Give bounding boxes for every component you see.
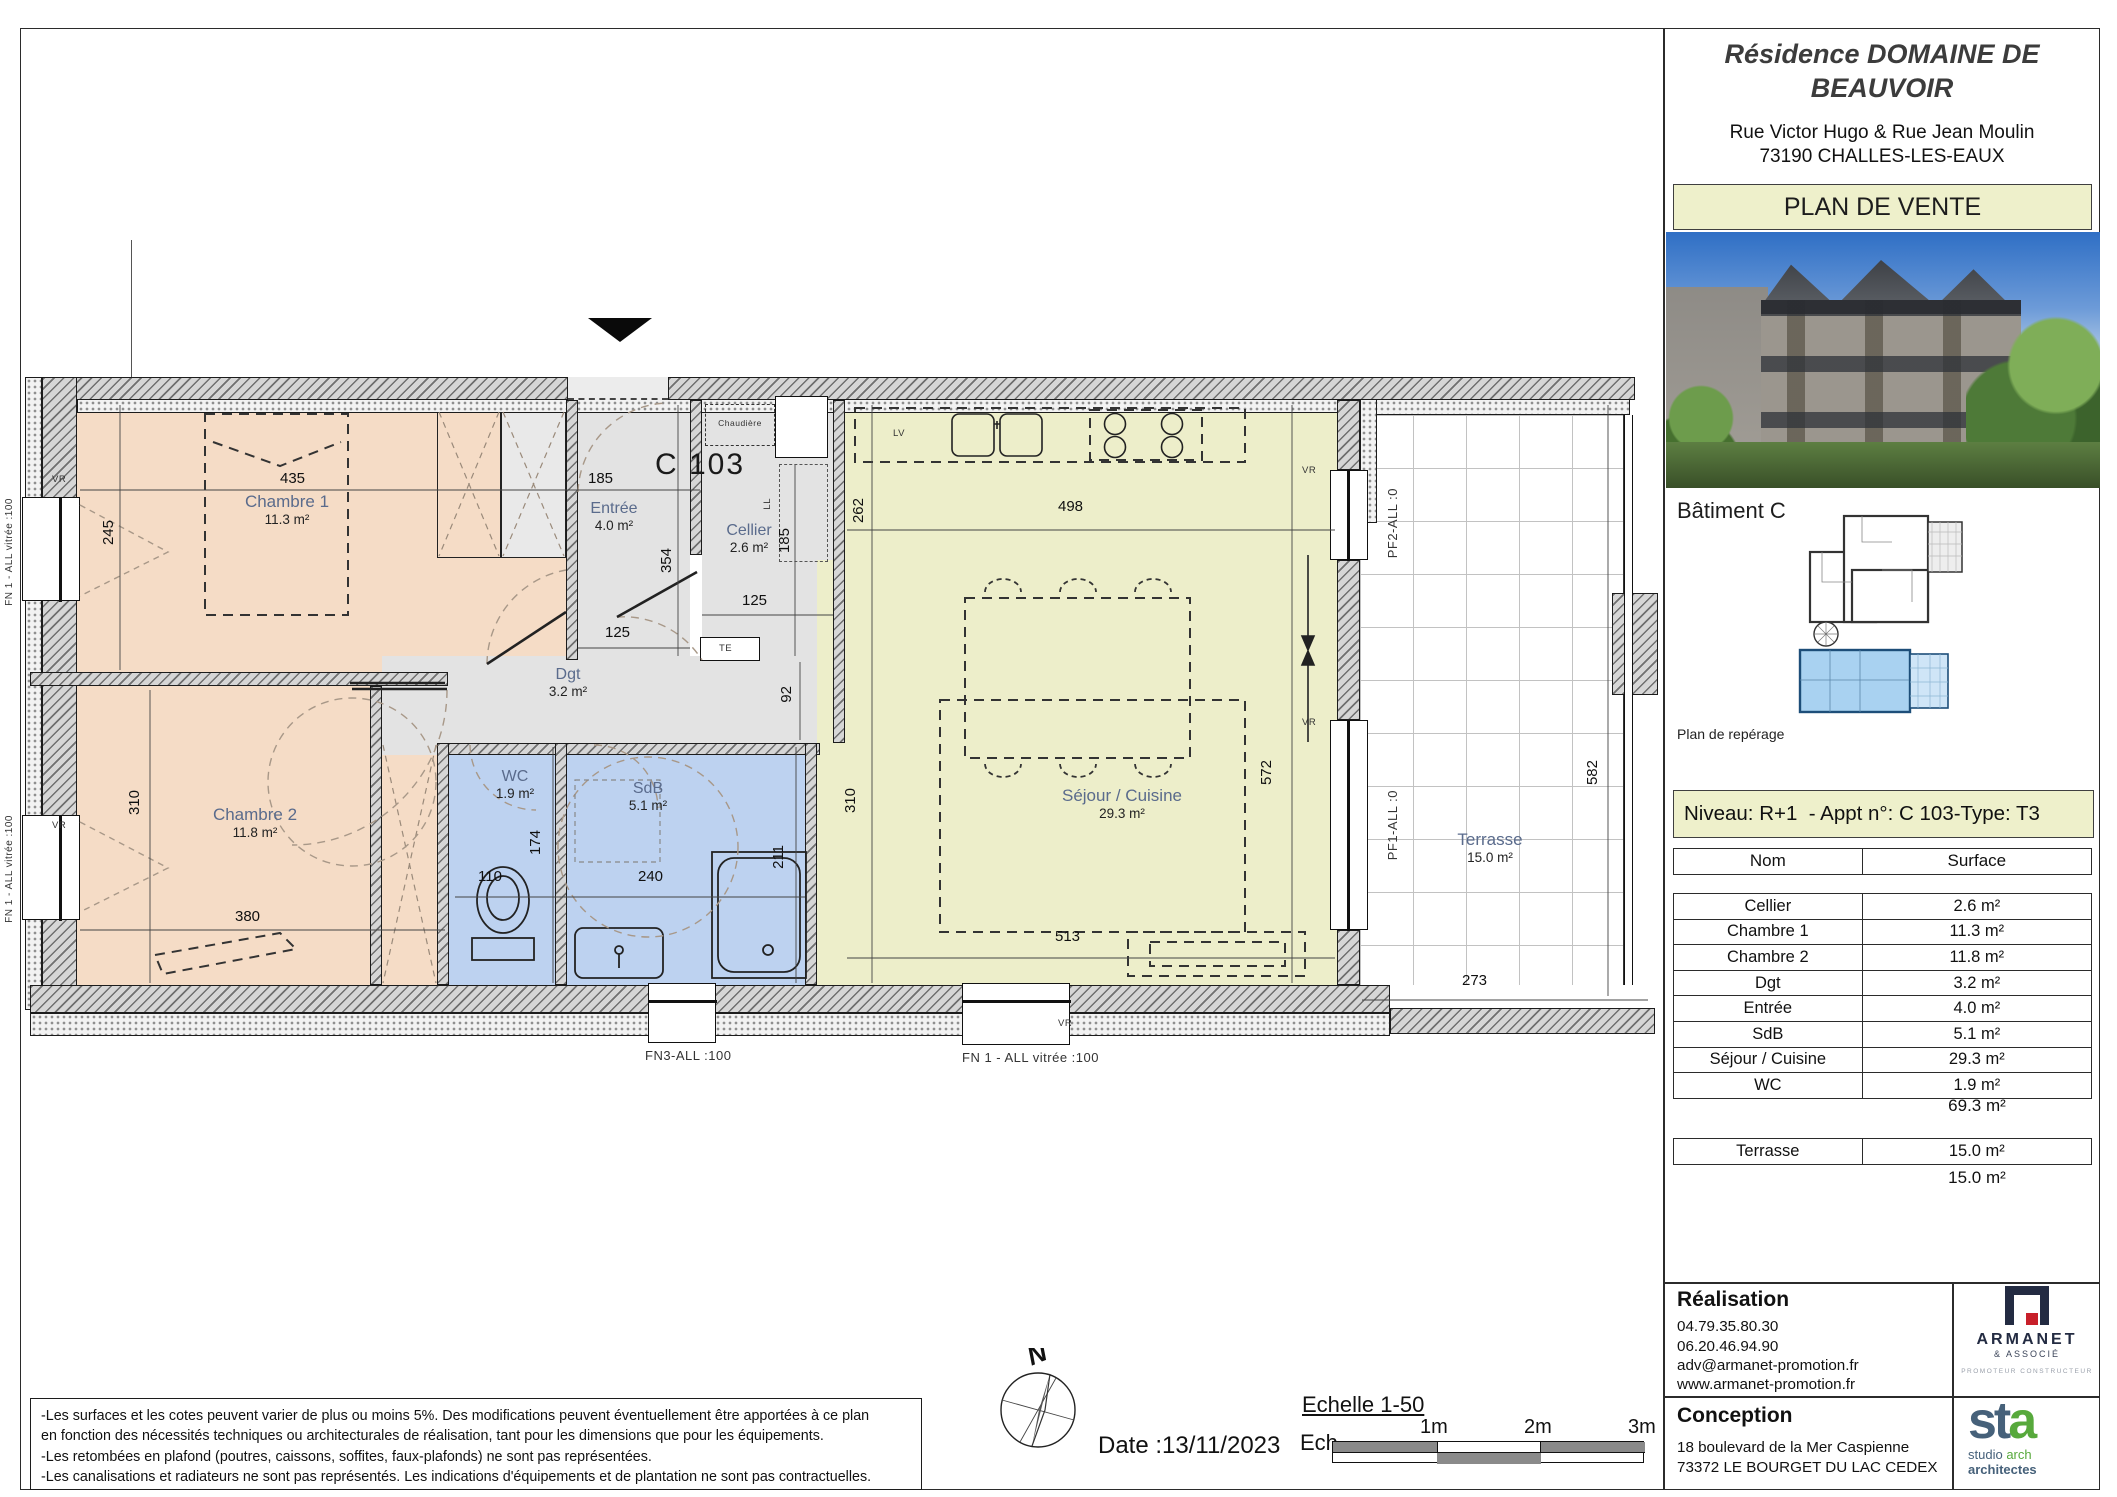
axis-line (131, 240, 132, 377)
lv-label: LV (893, 428, 905, 439)
conception-address1: 18 boulevard de la Mer Caspienne (1677, 1438, 1909, 1458)
disclaimer-box: -Les surfaces et les cotes peuvent varie… (30, 1398, 922, 1490)
date-label: Date :13/11/2023 (1098, 1432, 1280, 1460)
label-chambre2: Chambre 2 11.8 m² (175, 805, 335, 840)
row-name: Chambre 1 (1674, 920, 1863, 945)
row-surface: 29.3 m² (1863, 1048, 2091, 1073)
photo-hedge (1666, 442, 2100, 488)
surfaces-total: 69.3 m² (1862, 1096, 2092, 1116)
te-label: TE (719, 643, 732, 654)
terrace-right-rail (1624, 415, 1633, 985)
label-wc: WC 1.9 m² (475, 768, 555, 802)
scale-title: Echelle 1-50 (1302, 1392, 1424, 1418)
vr-pf2: VR (1302, 465, 1316, 476)
row-name: WC (1674, 1073, 1863, 1098)
armanet-logo: ARMANET & ASSOCIÉ PROMOTEUR CONSTRUCTEUR (1956, 1286, 2098, 1394)
pf2-label: PF2-ALL :0 (1385, 488, 1400, 558)
table-row: Chambre 1 11.3 m² (1673, 920, 2092, 946)
dim-125-entree: 125 (605, 624, 630, 641)
label-sejour: Séjour / Cuisine 29.3 m² (1032, 786, 1212, 821)
residence-title: Résidence DOMAINE DE BEAUVOIR (1672, 38, 2092, 106)
row-surface: 5.1 m² (1863, 1022, 2091, 1047)
wall-bottom-terrace (1390, 1008, 1655, 1034)
ll-label: LL (762, 498, 773, 510)
table-row: WC 1.9 m² (1673, 1073, 2092, 1099)
wall-dgt-bains (437, 743, 820, 755)
wall-sdb-sejour (805, 743, 817, 985)
table-row: SdB 5.1 m² (1673, 1022, 2092, 1048)
realisation-website: www.armanet-promotion.fr (1677, 1375, 1855, 1395)
dim-174: 174 (527, 830, 544, 855)
surfaces-table: Cellier 2.6 m² Chambre 1 11.3 m² Chambre… (1673, 893, 2092, 1099)
vr-fn1: VR (1058, 1018, 1072, 1029)
fn1-left-label-1: FN 1 - ALL vitrée :100 (4, 498, 15, 606)
wall-wc-left (437, 743, 449, 985)
dim-245: 245 (100, 520, 117, 545)
row-name: Dgt (1674, 971, 1863, 996)
row-surface: 4.0 m² (1863, 996, 2091, 1021)
armanet-arch-icon (2005, 1286, 2049, 1325)
entrance-arrow (588, 318, 652, 342)
row-name: SdB (1674, 1022, 1863, 1047)
realisation-divider (1663, 1282, 2100, 1284)
realisation-phone2: 06.20.46.94.90 (1677, 1337, 1778, 1357)
chaudiere-label: Chaudière (708, 418, 772, 428)
realisation-title: Réalisation (1677, 1288, 1789, 1312)
niveau-banner: Niveau: R+1 - Appt n°: C 103-Type: T3 (1673, 790, 2094, 838)
dim-310-ch2: 310 (126, 790, 143, 815)
residence-address-1: Rue Victor Hugo & Rue Jean Moulin (1672, 122, 2092, 144)
disclaimer-line-2: en fonction des nécessités techniques ou… (41, 1426, 911, 1446)
vr-ch1: VR (52, 474, 66, 485)
dim-262: 262 (850, 498, 867, 523)
compass-icon: N (990, 1348, 1090, 1458)
logo-divider-2 (1952, 1396, 1954, 1490)
dim-185-entree: 185 (588, 470, 613, 487)
table-row: Cellier 2.6 m² (1673, 893, 2092, 920)
disclaimer-line-1: -Les surfaces et les cotes peuvent varie… (41, 1406, 911, 1426)
fn1-left-label-2: FN 1 - ALL vitrée :100 (4, 815, 15, 923)
row-name: Chambre 2 (1674, 945, 1863, 970)
sta-arch: arch (2006, 1447, 2031, 1462)
window-ch2 (22, 815, 80, 920)
row-name: Cellier (1674, 894, 1863, 919)
row-surface: 11.8 m² (1863, 945, 2091, 970)
pf1-label: PF1-ALL :0 (1385, 790, 1400, 860)
niveau-text: Niveau: R+1 - Appt n°: C 103-Type: T3 (1674, 802, 2040, 826)
duct-box (775, 396, 828, 458)
armanet-tagline: PROMOTEUR CONSTRUCTEUR (1956, 1368, 2098, 1375)
closet-chambre1-a (437, 410, 501, 558)
armanet-sub: & ASSOCIÉ (1956, 1349, 2098, 1359)
sta-st: st (1968, 1392, 2008, 1450)
table-row: Chambre 2 11.8 m² (1673, 945, 2092, 971)
disclaimer-line-3: -Les retombées en plafond (poutres, cais… (41, 1447, 911, 1467)
insulation-terrace-top (1360, 399, 1630, 415)
dim-92: 92 (778, 686, 795, 703)
dim-582: 582 (1584, 760, 1601, 785)
dim-125-cellier: 125 (742, 592, 767, 609)
reperage-miniplan (1782, 512, 1972, 717)
fn3-label: FN3-ALL :100 (645, 1048, 731, 1063)
vr-ch2: VR (52, 820, 66, 831)
row-surface: 3.2 m² (1863, 971, 2091, 996)
disclaimer-line-4: -Les canalisations et radiateurs ne sont… (41, 1467, 911, 1487)
batiment-label: Bâtiment C (1677, 498, 1786, 524)
sta-architectes: architectes (1968, 1462, 2096, 1477)
fn1-label: FN 1 - ALL vitrée :100 (962, 1050, 1099, 1065)
realisation-phone1: 04.79.35.80.30 (1677, 1317, 1778, 1337)
dim-110: 110 (478, 868, 502, 885)
wall-ch1-ch2 (30, 672, 448, 686)
terrasse-total: 15.0 m² (1862, 1168, 2092, 1188)
window-pf2 (1330, 470, 1368, 560)
residence-address-2: 73190 CHALLES-LES-EAUX (1672, 146, 2092, 168)
terrace-pier (1612, 593, 1658, 695)
window-fn3 (648, 983, 716, 1043)
col-nom: Nom (1674, 849, 1863, 874)
table-row: Dgt 3.2 m² (1673, 971, 2092, 997)
conception-title: Conception (1677, 1404, 1793, 1428)
dim-572: 572 (1258, 760, 1275, 785)
vr-pf1: VR (1302, 717, 1316, 728)
wall-terrace-a (1337, 400, 1360, 470)
wall-top-left (30, 377, 568, 400)
window-pf1 (1330, 720, 1368, 930)
row-surface: 11.3 m² (1863, 920, 2091, 945)
scale-1m: 1m (1420, 1416, 1448, 1439)
dim-498: 498 (1058, 498, 1083, 515)
logo-divider-1 (1952, 1282, 1954, 1396)
wall-cellier-sejour (833, 400, 845, 743)
panel-divider (1663, 28, 1665, 1490)
wall-wc-sdb (555, 743, 567, 985)
col-surface: Surface (1863, 849, 2091, 874)
dim-513: 513 (1055, 928, 1080, 945)
label-dgt: Dgt 3.2 m² (528, 666, 608, 700)
window-fn1 (962, 983, 1070, 1045)
wall-ch2-closet (370, 686, 382, 985)
table-header: Nom Surface (1673, 848, 2092, 875)
wall-terrace-c (1337, 930, 1360, 985)
row-name: Séjour / Cuisine (1674, 1048, 1863, 1073)
window-ch1 (22, 497, 80, 601)
dim-435: 435 (280, 470, 305, 487)
row-surface: 15.0 m² (1863, 1139, 2091, 1164)
label-chambre1: Chambre 1 11.3 m² (207, 492, 367, 527)
room-sejour (845, 412, 1337, 985)
scale-3m: 3m (1628, 1416, 1656, 1439)
table-row: Séjour / Cuisine 29.3 m² (1673, 1048, 2092, 1074)
label-sdb: SdB 5.1 m² (608, 780, 688, 814)
plan-de-vente-text: PLAN DE VENTE (1784, 193, 1981, 222)
entrance-recess (568, 377, 668, 400)
sta-studio: studio (1968, 1447, 2003, 1462)
table-header-row: Nom Surface (1673, 848, 2092, 875)
row-name: Terrasse (1674, 1139, 1863, 1164)
row-name: Entrée (1674, 996, 1863, 1021)
sta-a: a (2008, 1392, 2034, 1450)
unit-label: C 103 (630, 448, 770, 482)
terrasse-row: Terrasse 15.0 m² (1673, 1138, 2092, 1165)
compass-n: N (1023, 1348, 1053, 1371)
plan-de-vente-sheet: { "panel": { "title": "Résidence DOMAINE… (0, 0, 2117, 1497)
dim-185-cellier: 185 (776, 528, 793, 553)
wall-terrace-b (1337, 560, 1360, 720)
dim-273: 273 (1462, 972, 1487, 989)
dim-240: 240 (638, 868, 663, 885)
reperage-caption: Plan de repérage (1677, 726, 1784, 742)
scale-bar (1332, 1441, 1644, 1463)
closet-chambre1-b (501, 410, 566, 558)
dim-380: 380 (235, 908, 260, 925)
sta-logo: sta studio arch architectes (1968, 1398, 2096, 1488)
building-photo (1666, 232, 2100, 488)
conception-address2: 73372 LE BOURGET DU LAC CEDEX (1677, 1458, 1938, 1478)
row-surface: 1.9 m² (1863, 1073, 2091, 1098)
realisation-email: adv@armanet-promotion.fr (1677, 1356, 1859, 1376)
terrasse-table: Terrasse 15.0 m² (1673, 1138, 2092, 1165)
table-row: Entrée 4.0 m² (1673, 996, 2092, 1022)
label-entree: Entrée 4.0 m² (562, 500, 666, 534)
scale-2m: 2m (1524, 1416, 1552, 1439)
plan-de-vente-banner: PLAN DE VENTE (1673, 184, 2092, 230)
row-surface: 2.6 m² (1863, 894, 2091, 919)
dim-310-sejour: 310 (842, 788, 859, 813)
dim-211: 211 (770, 845, 787, 869)
label-terrasse: Terrasse 15.0 m² (1410, 830, 1570, 865)
dim-354: 354 (658, 548, 675, 573)
armanet-name: ARMANET (1956, 1331, 2098, 1349)
